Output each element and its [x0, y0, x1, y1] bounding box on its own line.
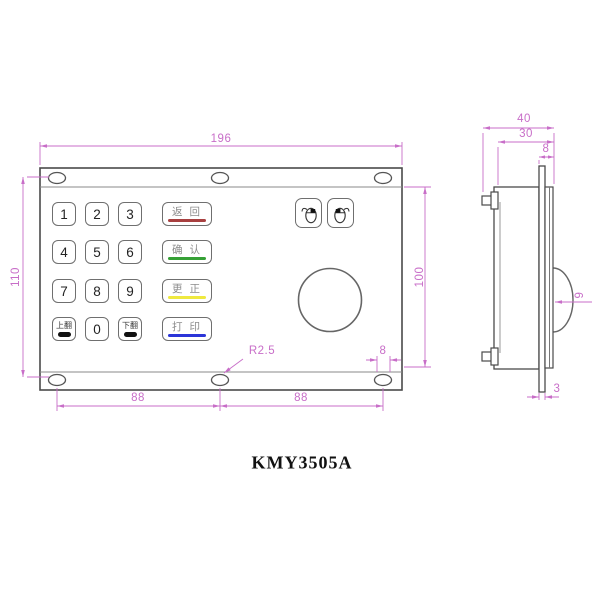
function-key-correct: 更 正 — [162, 279, 212, 303]
digit-key-5: 5 — [85, 240, 109, 264]
key-label: 4 — [60, 245, 68, 260]
digit-key-4: 4 — [52, 240, 76, 264]
mounting-hole — [212, 173, 229, 184]
key-label: 1 — [60, 207, 68, 222]
side-mounting-plate — [539, 166, 545, 392]
key-label: 打 印 — [172, 319, 202, 334]
mouse-right-click-icon — [328, 199, 355, 229]
function-key-print: 打 印 — [162, 317, 212, 341]
key-label: 3 — [126, 207, 134, 222]
function-key-return: 返 回 — [162, 202, 212, 226]
digit-key-3: 3 — [118, 202, 142, 226]
digit-key-6: 6 — [118, 240, 142, 264]
model-number: KMY3505A — [252, 453, 353, 474]
side-body — [494, 187, 539, 369]
key-label: 8 — [93, 284, 101, 299]
mounting-hole — [49, 173, 66, 184]
key-label: 7 — [60, 284, 68, 299]
digit-key-9: 9 — [118, 279, 142, 303]
mounting-hole — [212, 375, 229, 386]
key-label: 0 — [93, 322, 101, 337]
key-underline-black — [124, 332, 137, 337]
mouse-left-click-icon — [296, 199, 323, 229]
key-underline-yellow — [168, 296, 206, 299]
digit-key-1: 1 — [52, 202, 76, 226]
key-label: 返 回 — [172, 204, 202, 219]
digit-key-8: 8 — [85, 279, 109, 303]
digit-key-7: 7 — [52, 279, 76, 303]
dim-height-110: 110 — [10, 267, 22, 287]
mouse-left-button-key — [295, 198, 322, 228]
key-underline-black — [58, 332, 71, 337]
key-label: 上翻 — [56, 320, 72, 331]
key-page-down: 下翻 — [118, 317, 142, 341]
key-underline-blue — [168, 334, 206, 337]
mounting-hole — [375, 173, 392, 184]
dim-ball-protrusion: 9 — [574, 292, 586, 299]
rear-bolt-top — [482, 192, 498, 209]
key-label: 确 认 — [172, 242, 202, 257]
side-trackball-dome — [553, 268, 573, 332]
key-underline-green — [168, 257, 206, 260]
key-label: 9 — [126, 284, 134, 299]
mouse-right-button-key — [327, 198, 354, 228]
dim-slot-radius: R2.5 — [249, 345, 275, 357]
key-underline-red — [168, 219, 206, 222]
dim-depth-40: 40 — [517, 113, 531, 125]
key-page-up: 上翻 — [52, 317, 76, 341]
key-label: 更 正 — [172, 281, 202, 296]
dim-height-100: 100 — [414, 267, 426, 288]
dim-offset-8: 8 — [543, 143, 550, 155]
dim-width-196: 196 — [211, 133, 232, 145]
side-view — [482, 166, 573, 392]
technical-drawing-sheet: 1 2 3 返 回 4 5 6 确 认 7 8 9 更 正 上翻 0 下翻 打 … — [0, 0, 600, 600]
digit-key-0: 0 — [85, 317, 109, 341]
dim-hole-pitch-right: 88 — [294, 392, 308, 404]
key-label: 6 — [126, 245, 134, 260]
key-label: 2 — [93, 207, 101, 222]
key-label: 下翻 — [122, 320, 138, 331]
rear-bolt-bottom — [482, 348, 498, 365]
dim-depth-30: 30 — [519, 128, 533, 140]
dim-slot-length-8: 8 — [380, 345, 387, 357]
mounting-hole — [375, 375, 392, 386]
digit-key-2: 2 — [85, 202, 109, 226]
mounting-hole — [49, 375, 66, 386]
dim-plate-thickness: 3 — [554, 383, 561, 395]
key-label: 5 — [93, 245, 101, 260]
function-key-confirm: 确 认 — [162, 240, 212, 264]
dim-hole-pitch-left: 88 — [131, 392, 145, 404]
